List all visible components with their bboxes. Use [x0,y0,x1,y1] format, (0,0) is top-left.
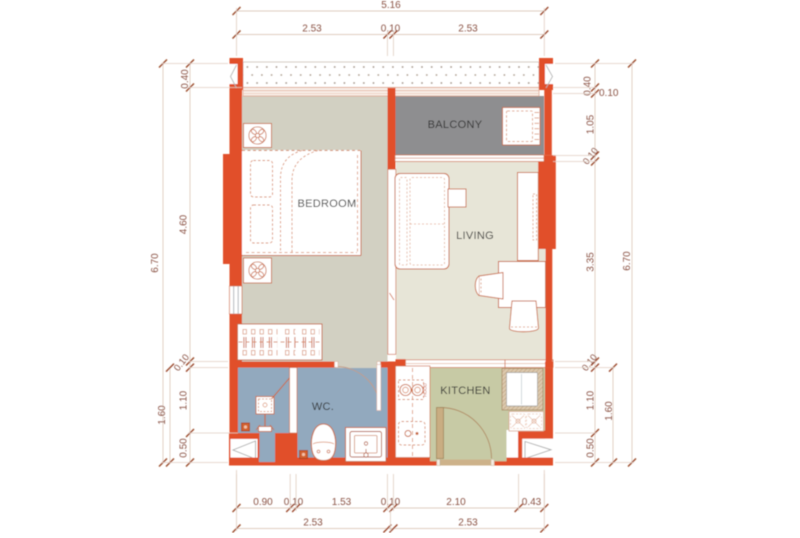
svg-text:4.60: 4.60 [179,214,190,234]
svg-text:1.60: 1.60 [604,401,615,421]
svg-text:0.40: 0.40 [180,69,191,89]
svg-text:6.70: 6.70 [622,251,633,271]
svg-text:LIVING: LIVING [456,230,494,242]
svg-text:1.60: 1.60 [157,405,168,425]
svg-text:2.53: 2.53 [458,24,478,35]
svg-text:BALCONY: BALCONY [428,119,483,131]
svg-text:KITCHEN: KITCHEN [440,385,490,397]
svg-text:0.90: 0.90 [253,497,273,508]
svg-text:0.10: 0.10 [381,24,401,35]
svg-text:HOOD: HOOD [423,382,428,396]
svg-text:0.10: 0.10 [284,497,304,508]
svg-text:2.53: 2.53 [303,518,323,529]
svg-text:1.10: 1.10 [586,390,597,410]
svg-text:2.10: 2.10 [446,497,466,508]
svg-text:BEDROOM: BEDROOM [298,198,357,210]
svg-text:1.53: 1.53 [332,497,352,508]
svg-text:0.43: 0.43 [522,497,542,508]
svg-text:6.70: 6.70 [150,253,161,273]
svg-text:1.10: 1.10 [179,390,190,410]
svg-text:WC.: WC. [312,401,334,413]
svg-text:5.16: 5.16 [381,0,401,11]
svg-text:0.10: 0.10 [381,497,401,508]
svg-text:3.35: 3.35 [586,252,597,272]
svg-text:2.53: 2.53 [458,518,478,529]
svg-text:2.53: 2.53 [302,24,322,35]
svg-text:1.05: 1.05 [586,114,597,134]
svg-text:0.10: 0.10 [599,88,619,99]
svg-text:0.50: 0.50 [179,438,190,458]
svg-text:0.40: 0.40 [583,76,594,96]
svg-text:0.50: 0.50 [586,438,597,458]
